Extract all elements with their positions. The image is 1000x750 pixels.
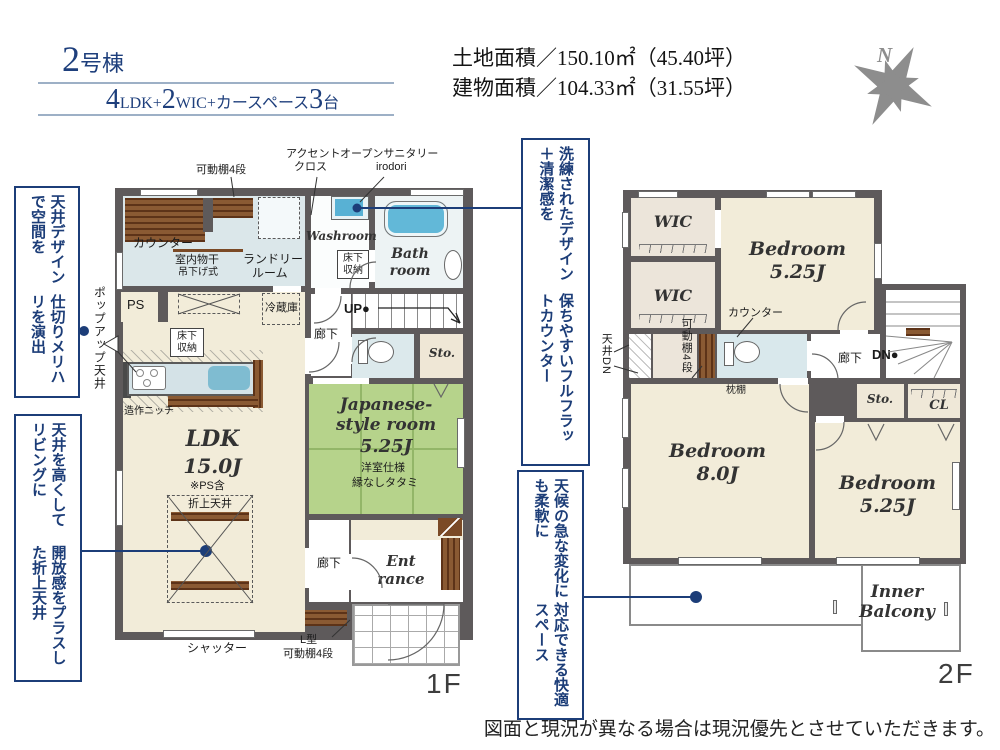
door-opening <box>778 378 808 385</box>
window <box>622 398 629 438</box>
label-accent-cloth-1: アクセント <box>286 148 340 161</box>
door-opening <box>816 416 844 423</box>
tatami-name-line1: Japanese- <box>340 395 433 415</box>
bath-line2: room <box>390 263 431 279</box>
layout-txt-ldk: LDK+ <box>120 95 162 112</box>
label-hanging-type: 吊下げ式 <box>178 267 218 279</box>
door-opening <box>315 288 341 294</box>
label-popup-ceiling: ポップアップ天井 <box>92 286 106 396</box>
bedroom3-name: Bedroom <box>839 472 936 494</box>
layout-num-ldk: 4 <box>106 84 120 115</box>
callout-balcony-line1: 天候の急な変化にも柔軟に <box>531 478 570 599</box>
wic2-hanger <box>639 314 707 323</box>
layout-summary: 4LDK+2WIC+カースペース3台 <box>55 84 390 112</box>
label-pillow-shelf: 枕棚 <box>726 385 746 397</box>
balcony-post <box>944 602 948 616</box>
bedroom1-name: Bedroom <box>749 238 846 260</box>
land-area: 土地面積／150.10㎡（45.40坪） <box>452 42 746 72</box>
entrance-line2: rance <box>377 570 424 588</box>
window <box>457 418 465 468</box>
ceiling-beam <box>171 512 249 521</box>
toilet-tank-1f <box>358 340 368 364</box>
label-closet-2f: CL <box>924 398 954 414</box>
window <box>622 468 629 508</box>
label-bedroom1: Bedroom 5.25J <box>740 238 855 284</box>
kitchen-sink <box>208 366 250 390</box>
callout-counter-line2: 保ちやすいフルフラットカウンター <box>536 293 575 458</box>
stove-burner <box>150 369 158 377</box>
door-opening <box>305 548 311 588</box>
label-bedroom3: Bedroom 5.25J <box>830 472 945 518</box>
window <box>140 189 198 196</box>
label-tatami-spec1: 洋室仕様 <box>361 462 405 475</box>
stove-burner <box>136 369 144 377</box>
callout-flat-counter: 洗練されたデザイン＋清潔感を 保ちやすいフルフラットカウンター <box>521 138 590 466</box>
door-opening <box>840 330 868 336</box>
label-hallway-1f-lower: 廊下 <box>317 556 341 570</box>
label-tatami-room: Japanese- style room 5.25J <box>320 395 452 457</box>
label-ldk-note: ※PS含 <box>190 480 225 493</box>
fridge-box <box>262 293 300 325</box>
label-laundry-room-2: ルーム <box>252 266 288 280</box>
label-hallway-1f: 廊下 <box>314 327 338 341</box>
label-hallway-2f: 廊下 <box>838 351 862 365</box>
ps-wall <box>158 292 168 322</box>
balcony-line1: Inner <box>871 582 923 602</box>
ceiling-beam <box>171 581 249 590</box>
label-accent-cloth-2: クロス <box>294 161 327 174</box>
door-opening <box>349 554 353 590</box>
window <box>622 212 629 248</box>
label-l-shelf-2: 可動棚4段 <box>283 648 333 661</box>
label-ps: PS <box>127 297 144 313</box>
label-up: UP● <box>344 301 370 317</box>
door-opening <box>346 337 352 364</box>
compass-icon <box>833 26 952 145</box>
callout-ceiling-design-line2: 仕切りメリハリを演出 <box>28 294 67 391</box>
ceiling-down-hatch <box>629 334 651 378</box>
floorplan-page: 2号棟 4LDK+2WIC+カースペース3台 土地面積／150.10㎡（45.4… <box>0 0 1000 750</box>
wic1-hanger <box>639 244 707 253</box>
entrance-line1: Ent <box>386 552 415 570</box>
callout-counter-line1: 洗練されたデザイン＋清潔感を <box>536 146 575 290</box>
dining-table-box <box>178 294 240 314</box>
shelf-wall-stub <box>203 198 213 232</box>
window <box>952 462 960 510</box>
disclaimer: 図面と現況が異なる場合は現況優先とさせていただきます。 <box>430 714 995 741</box>
floor-storage-line2: 収納 <box>177 343 197 354</box>
balcony-door <box>678 557 762 565</box>
layout-txt-car: 台 <box>323 95 339 112</box>
window <box>116 252 123 290</box>
movable-shelf-wood <box>213 198 253 218</box>
label-open-sanitary: オープンサニタリー <box>340 148 438 161</box>
label-ceiling-dn: 天井DN <box>599 333 612 389</box>
door-opening <box>273 286 301 292</box>
label-storage-2f: Sto. <box>862 392 898 406</box>
bathtub <box>384 201 448 237</box>
window <box>410 189 464 196</box>
floor-storage-line1: 床下 <box>343 253 363 264</box>
label-floor-storage-washroom: 床下 収納 <box>337 250 369 279</box>
label-wic1: WIC <box>640 212 706 231</box>
callout-balcony-line2: 対応できる快適スペース <box>531 602 570 712</box>
inner-balcony-west <box>629 564 865 626</box>
label-washroom: Washroom <box>306 229 372 243</box>
label-l-shelf-1: L型 <box>300 634 317 647</box>
l-shelf-wood <box>305 610 347 626</box>
window <box>766 191 810 198</box>
callout-inner-balcony: 天候の急な変化にも柔軟に 対応できる快適スペース <box>517 470 584 720</box>
label-ldk-size: 15.0J <box>160 454 265 478</box>
bedroom1-size: 5.25J <box>770 261 825 283</box>
layout-num-car: 3 <box>309 84 323 115</box>
label-ldk: LDK <box>160 426 265 452</box>
callout-coffered-line2: 開放感をプラスした折上天井 <box>29 545 68 674</box>
label-bathroom: Bath room <box>384 246 436 280</box>
sanitary-sink-bowl <box>335 199 363 216</box>
label-niche: 造作ニッチ <box>124 406 174 418</box>
kitchen-wood-front <box>168 396 258 407</box>
label-wic2: WIC <box>640 286 706 305</box>
label-storage-1f: Sto. <box>424 346 460 360</box>
building-suffix: 号棟 <box>80 51 124 76</box>
door-opening <box>715 210 721 248</box>
layout-txt-wic: WIC+カースペース <box>176 95 309 112</box>
label-counter-2f: カウンター <box>728 307 783 320</box>
cl-hanger <box>911 389 957 398</box>
callout-coffered-ceiling: 天井を高くしてリビングに 開放感をプラスした折上天井 <box>14 414 82 682</box>
label-movable-shelf-2f: 可動棚4段 <box>679 318 692 380</box>
compass-north-label: N <box>876 43 893 67</box>
label-coffered-ceiling: 折上天井 <box>188 498 232 511</box>
stairs-wood-step <box>906 328 930 336</box>
stove-burner <box>143 379 151 387</box>
door-opening <box>369 250 375 282</box>
washer-box <box>258 197 300 239</box>
label-sanitary-brand: irodori <box>376 161 407 174</box>
callout-coffered-line1: 天井を高くしてリビングに <box>29 422 68 542</box>
entrance-porch <box>352 604 460 666</box>
balcony-post <box>833 600 837 614</box>
bedroom2-name: Bedroom <box>669 440 766 462</box>
toilet-bowl-2f <box>734 341 760 363</box>
callout-ceiling-design-line1: 天井デザインで空間を <box>28 194 67 291</box>
building-area: 建物面積／104.33㎡（31.55坪） <box>452 72 746 102</box>
label-movable-shelf-1f: 可動棚4段 <box>196 164 246 177</box>
label-floor-storage-kitchen: 床下 収納 <box>170 328 204 357</box>
bedroom2-size: 8.0J <box>696 463 738 485</box>
label-inner-balcony: Inner Balcony <box>855 582 939 623</box>
balcony-line2: Balcony <box>859 602 935 622</box>
window <box>638 191 678 198</box>
label-bedroom2: Bedroom 8.0J <box>660 440 775 486</box>
building-number: 2 <box>62 39 80 79</box>
balcony-door <box>836 557 920 565</box>
floor-label-1f: 1F <box>426 668 463 700</box>
label-indoor-drying: 室内物干 <box>175 254 219 267</box>
layout-num-wic: 2 <box>162 84 176 115</box>
toilet-bowl-1f <box>368 341 394 363</box>
floor-storage-line2: 収納 <box>343 265 363 276</box>
callout-ceiling-design: 天井デザインで空間を 仕切りメリハリを演出 <box>14 186 80 398</box>
window <box>116 470 123 526</box>
bath-door <box>444 250 462 280</box>
shoe-cabinet <box>438 518 462 536</box>
label-tatami-spec2: 縁なしタタミ <box>352 477 418 490</box>
floor-storage-line1: 床下 <box>177 331 197 342</box>
movable-shelf-2f-wood <box>699 334 715 378</box>
building-title: 2号棟 <box>62 38 124 80</box>
door-opening <box>305 338 311 374</box>
drying-pole <box>173 249 243 252</box>
floor-label-2f: 2F <box>938 658 975 690</box>
window-shutter <box>163 630 255 638</box>
tatami-name-line2: style room <box>336 415 436 435</box>
toilet-tank-2f <box>724 342 734 366</box>
window <box>812 191 856 198</box>
door-opening <box>313 378 369 384</box>
label-shutter: シャッター <box>187 641 247 655</box>
header-rule-bottom <box>38 114 394 116</box>
label-entrance: Ent rance <box>370 552 432 588</box>
label-dn: DN● <box>872 347 899 363</box>
bedroom3-size: 5.25J <box>860 495 915 517</box>
window <box>874 243 882 279</box>
bath-line1: Bath <box>391 246 429 262</box>
label-laundry-room-1: ランドリー <box>243 252 303 266</box>
door-opening <box>807 341 813 371</box>
entrance-shelf-wood <box>441 538 460 590</box>
tatami-size: 5.25J <box>360 436 412 457</box>
